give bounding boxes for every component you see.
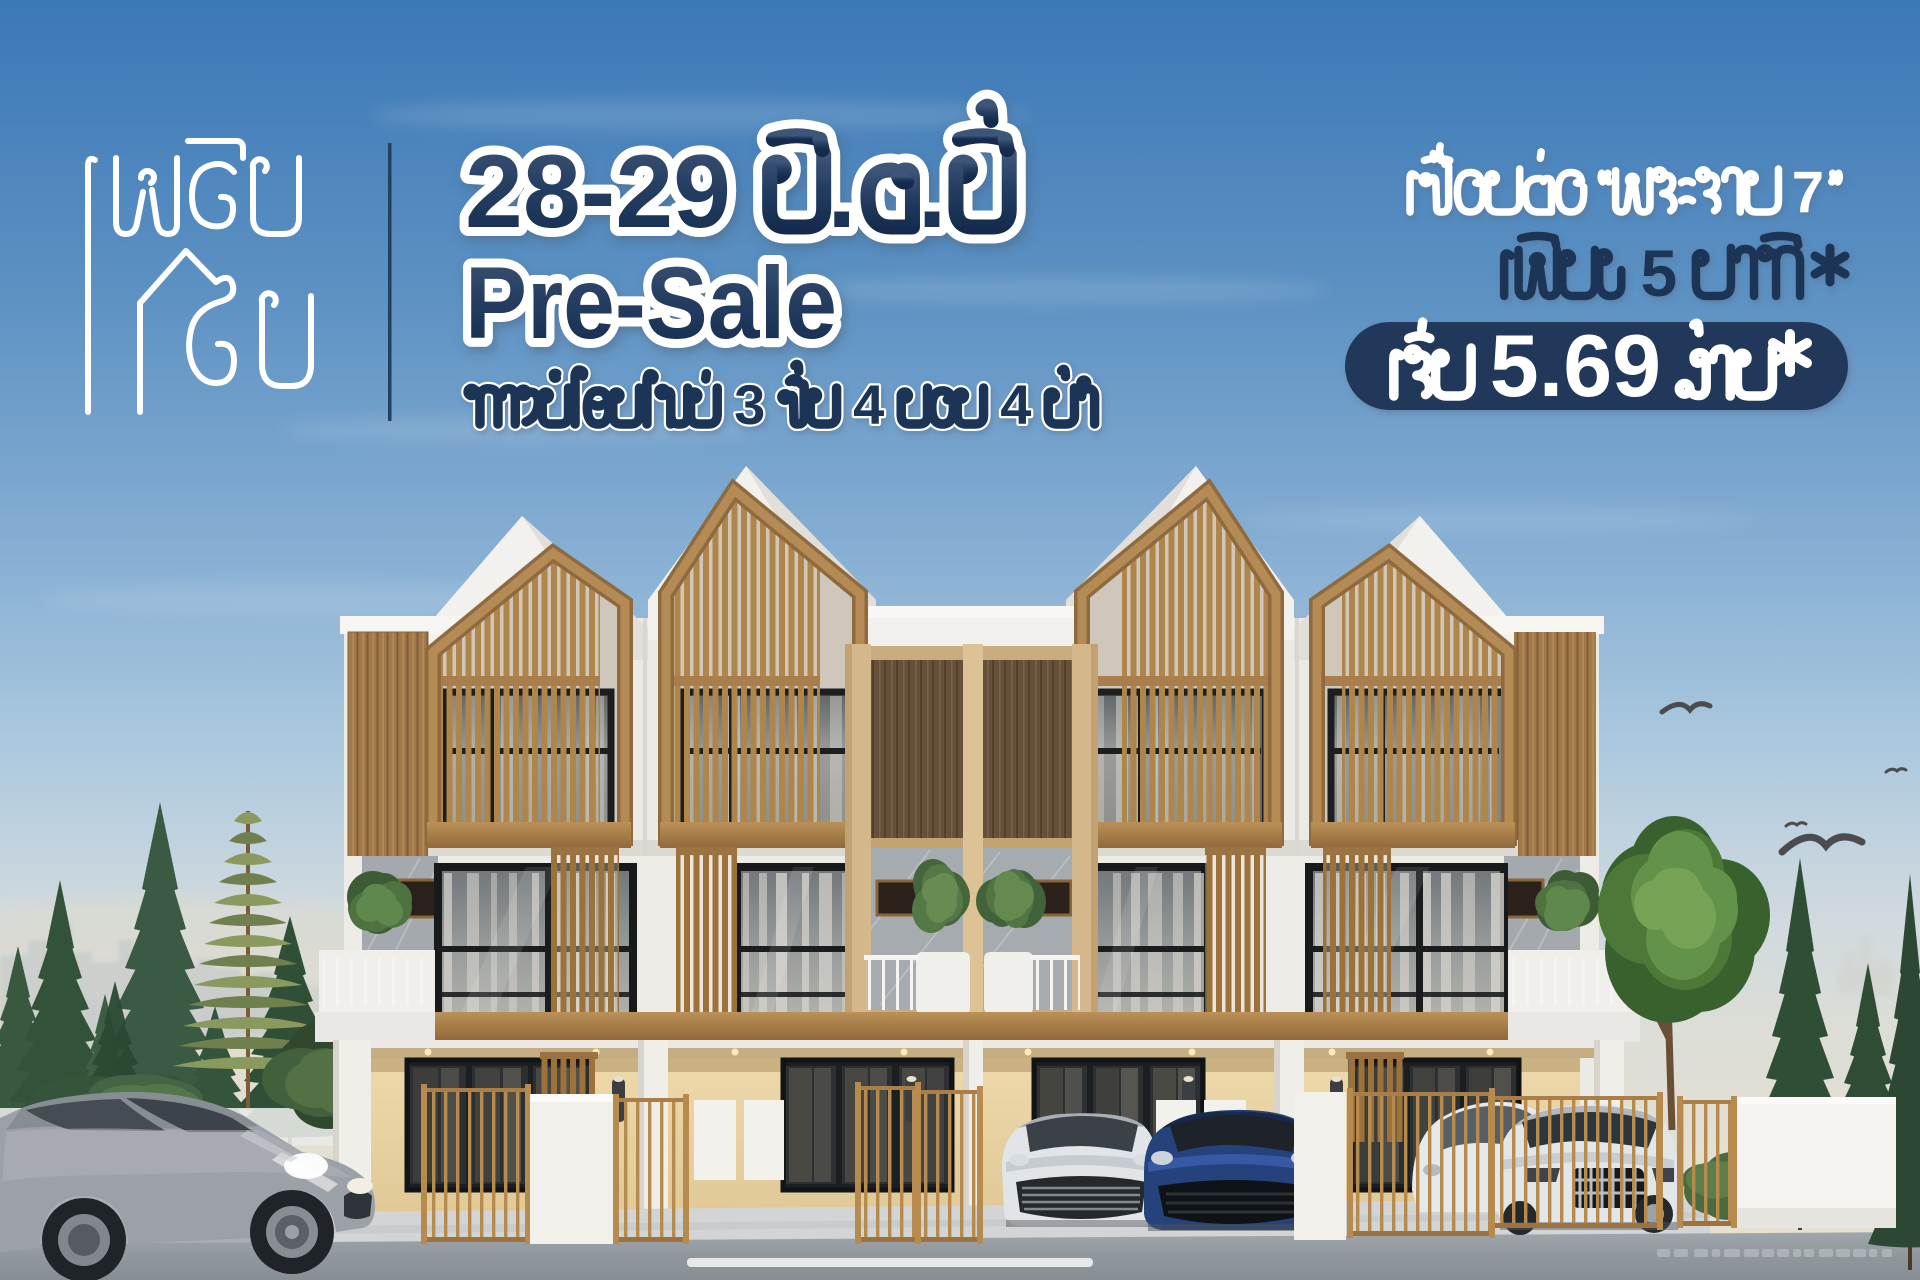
svg-text:7: 7 [1792, 160, 1824, 225]
svg-text:4: 4 [1000, 373, 1031, 436]
svg-text:.: . [918, 134, 947, 250]
svg-text:Pre-Sale: Pre-Sale [465, 246, 837, 360]
svg-text:28-29: 28-29 [465, 134, 731, 250]
svg-text:5.69: 5.69 [1490, 316, 1661, 415]
svg-text:5: 5 [1641, 236, 1678, 310]
svg-text:4: 4 [853, 373, 884, 436]
svg-text:3: 3 [734, 373, 765, 436]
svg-text:.: . [827, 134, 856, 250]
